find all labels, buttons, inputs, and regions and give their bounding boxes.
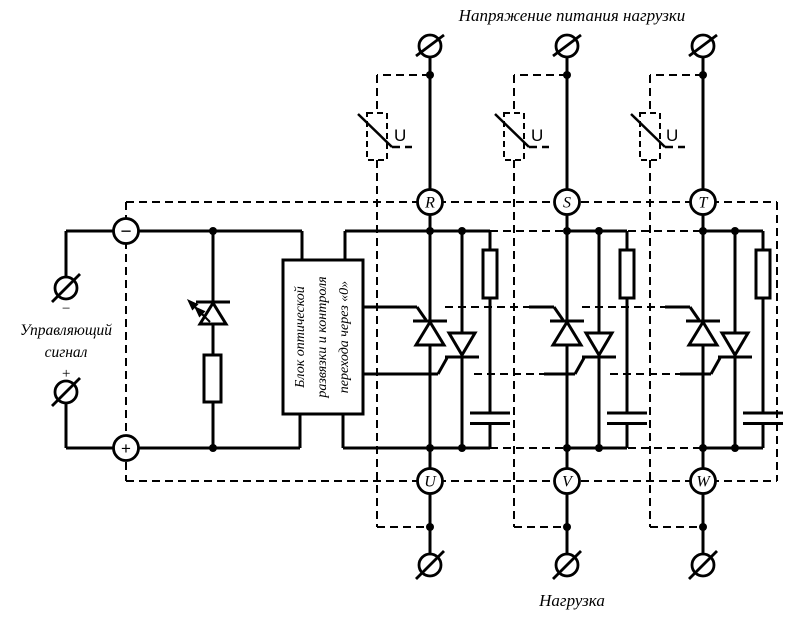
varistor-label-s: U <box>531 126 543 145</box>
led-diode-icon <box>200 303 226 324</box>
phase-input-letter-r: R <box>424 195 435 212</box>
source-plus-sign: + <box>121 439 131 458</box>
block-caption-line2: развязки и контроля <box>315 276 330 398</box>
control-circuit <box>66 231 430 448</box>
control-signal-label: сигнал <box>45 344 88 361</box>
block-caption-line3: перехода через «0» <box>337 281 352 393</box>
module-boundary-box <box>126 202 777 481</box>
phase-input-letter-s: S <box>563 195 571 212</box>
top-title: Напряжение питания нагрузки <box>458 6 686 25</box>
varistor-label-r: U <box>394 126 406 145</box>
phase-output-letter-u: U <box>424 474 437 491</box>
solid-state-relay-schematic: Напряжение питания нагрузки Нагрузка − У… <box>0 0 800 627</box>
phase-output-letter-w: W <box>696 474 711 491</box>
block-caption-line1: Блок оптической <box>293 286 308 389</box>
source-minus-sign: − <box>120 222 131 243</box>
bottom-title: Нагрузка <box>538 591 605 610</box>
control-minus-label: − <box>61 301 71 317</box>
control-plus-label: + <box>61 366 71 382</box>
series-resistor <box>204 355 221 402</box>
varistor-label-t: U <box>666 126 678 145</box>
control-signal-label: Управляющий <box>20 322 112 339</box>
schematic-page: Напряжение питания нагрузки Нагрузка − У… <box>0 0 800 627</box>
phase-input-letter-t: T <box>699 195 709 212</box>
